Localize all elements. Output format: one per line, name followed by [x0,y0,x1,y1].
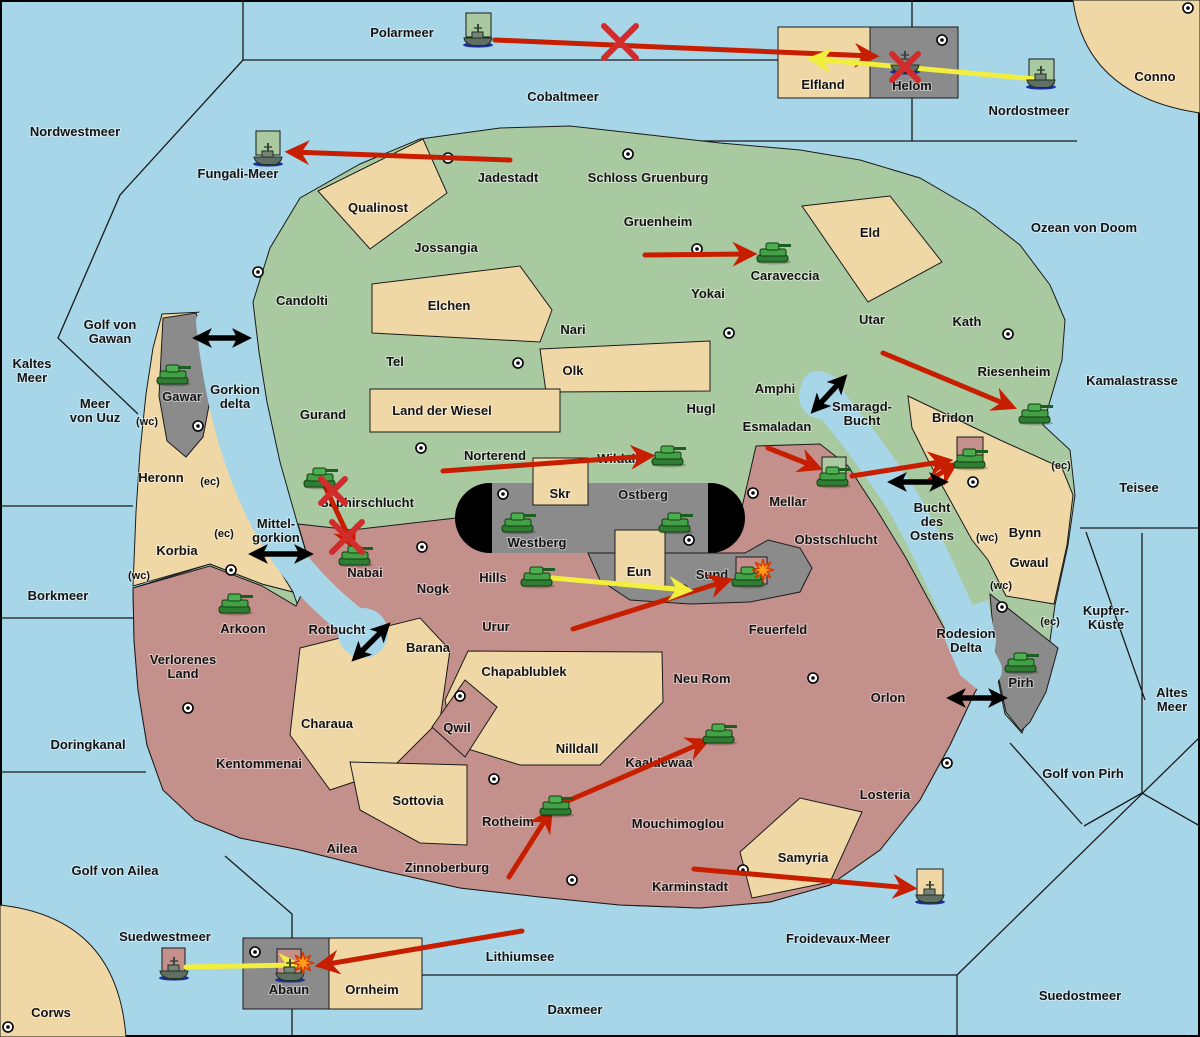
label-heronn: Heronn [138,470,184,485]
supply-center-dot [3,1022,13,1032]
supply-center-dot [416,443,426,453]
move-arrow [645,254,750,255]
label-suedwestmeer: Suedwestmeer [119,929,211,944]
label-lithiumsee: Lithiumsee [486,949,555,964]
supply-center-dot [498,489,508,499]
label-golf-von-pirh: Golf von Pirh [1042,766,1124,781]
label-skr: Skr [550,486,571,501]
coast-tag-wc: (wc) [990,580,1012,592]
label-qwil: Qwil [443,720,470,735]
supply-center-dot [455,691,465,701]
label-norterend: Norterend [464,448,526,463]
label-utar: Utar [859,312,885,327]
label-urur: Urur [482,619,509,634]
coast-tag-ec: (ec) [214,528,234,540]
label-jossangia: Jossangia [414,240,478,255]
label-kamalastrasse: Kamalastrasse [1086,373,1178,388]
label-schloss-gruenburg: Schloss Gruenburg [588,170,709,185]
label-ostberg: Ostberg [618,487,668,502]
label-feuerfeld: Feuerfeld [749,622,808,637]
label-kaltes-meer: KaltesMeer [12,356,51,385]
label-daxmeer: Daxmeer [548,1002,603,1017]
supply-center-dot [226,565,236,575]
label-westberg: Westberg [508,535,567,550]
label-borkmeer: Borkmeer [28,588,89,603]
label-froidevaux-meer: Froidevaux-Meer [786,931,890,946]
label-tel: Tel [386,354,404,369]
label-bridon: Bridon [932,410,974,425]
label-mellar: Mellar [769,494,807,509]
supply-center-dot [183,703,193,713]
support-arrow [186,965,296,967]
label-gwaul: Gwaul [1009,555,1048,570]
supply-center-dot [1183,3,1193,13]
label-mittel-gorkion: Mittel-gorkion [252,516,300,545]
label-nari: Nari [560,322,585,337]
label-elfland: Elfland [801,77,844,92]
label-yokai: Yokai [691,286,725,301]
coast-tag-ec: (ec) [1040,616,1060,628]
label-polarmeer: Polarmeer [370,25,434,40]
coast-tag-wc: (wc) [976,532,998,544]
label-esmaladan: Esmaladan [743,419,812,434]
label-gurand: Gurand [300,407,346,422]
explosion-marker [752,559,774,581]
label-bynn: Bynn [1009,525,1042,540]
label-fungali-meer: Fungali-Meer [198,166,279,181]
supply-center-dot [193,421,203,431]
label-korbia: Korbia [156,543,198,558]
supply-center-dot [684,535,694,545]
label-kupfer-k-ste: Kupfer-Küste [1083,603,1129,632]
coast-tag-wc: (wc) [128,570,150,582]
label-orlon: Orlon [871,690,906,705]
label-elchen: Elchen [428,298,471,313]
explosion-marker [292,952,314,974]
label-hugl: Hugl [687,401,716,416]
label-barana: Barana [406,640,451,655]
supply-center-dot [253,267,263,277]
label-mouchimoglou: Mouchimoglou [632,816,724,831]
label-land-der-wiesel: Land der Wiesel [392,403,492,418]
supply-center-dot [513,358,523,368]
coast-tag-ec: (ec) [200,476,220,488]
label-eld: Eld [860,225,880,240]
label-qualinost: Qualinost [348,200,409,215]
label-candolti: Candolti [276,293,328,308]
supply-center-dot [724,328,734,338]
label-teisee: Teisee [1119,480,1159,495]
label-jadestadt: Jadestadt [478,170,539,185]
supply-center-dot [567,875,577,885]
label-abaun: Abaun [269,982,310,997]
label-obstschlucht: Obstschlucht [794,532,878,547]
label-ornheim: Ornheim [345,982,398,997]
label-zinnoberburg: Zinnoberburg [405,860,490,875]
supply-center-dot [250,947,260,957]
label-rotheim: Rotheim [482,814,534,829]
supply-center-dot [937,35,947,45]
coast-tag-ec: (ec) [1051,460,1071,472]
label-ozean-von-doom: Ozean von Doom [1031,220,1137,235]
label-golf-von-gawan: Golf vonGawan [84,317,137,346]
label-charaua: Charaua [301,716,354,731]
label-olk: Olk [563,363,585,378]
label-nilldall: Nilldall [556,741,599,756]
label-rotbucht: Rotbucht [308,622,366,637]
supply-center-dot [968,477,978,487]
label-golf-von-ailea: Golf von Ailea [72,863,160,878]
label-eun: Eun [627,564,652,579]
label-samyria: Samyria [778,850,829,865]
label-conno: Conno [1134,69,1175,84]
supply-center-dot [942,758,952,768]
label-nordostmeer: Nordostmeer [989,103,1070,118]
label-altes-meer: AltesMeer [1156,685,1188,714]
label-nordwestmeer: Nordwestmeer [30,124,120,139]
label-karminstadt: Karminstadt [652,879,729,894]
label-kentommenai: Kentommenai [216,756,302,771]
supply-center-dot [997,602,1007,612]
label-pirh: Pirh [1008,675,1033,690]
label-ailea: Ailea [326,841,358,856]
label-gruenheim: Gruenheim [624,214,693,229]
label-neu-rom: Neu Rom [673,671,730,686]
supply-center-dot [489,774,499,784]
label-kath: Kath [953,314,982,329]
supply-center-dot [808,673,818,683]
label-amphi: Amphi [755,381,795,396]
label-nogk: Nogk [417,581,450,596]
supply-center-dot [1003,329,1013,339]
label-sottovia: Sottovia [392,793,444,808]
label-riesenheim: Riesenheim [978,364,1051,379]
supply-center-dot [623,149,633,159]
game-map: PolarmeerNordwestmeerCobaltmeerNordostme… [0,0,1200,1037]
label-doringkanal: Doringkanal [50,737,125,752]
label-caraveccia: Caraveccia [751,268,820,283]
coast-tag-wc: (wc) [136,416,158,428]
supply-center-dot [417,542,427,552]
label-losteria: Losteria [860,787,911,802]
label-gawar: Gawar [162,389,202,404]
label-chapablublek: Chapablublek [481,664,567,679]
label-cobaltmeer: Cobaltmeer [527,89,599,104]
label-helom: Helom [892,78,932,93]
label-hills: Hills [479,570,506,585]
label-arkoon: Arkoon [220,621,266,636]
supply-center-dot [748,488,758,498]
label-suedostmeer: Suedostmeer [1039,988,1121,1003]
label-corws: Corws [31,1005,71,1020]
